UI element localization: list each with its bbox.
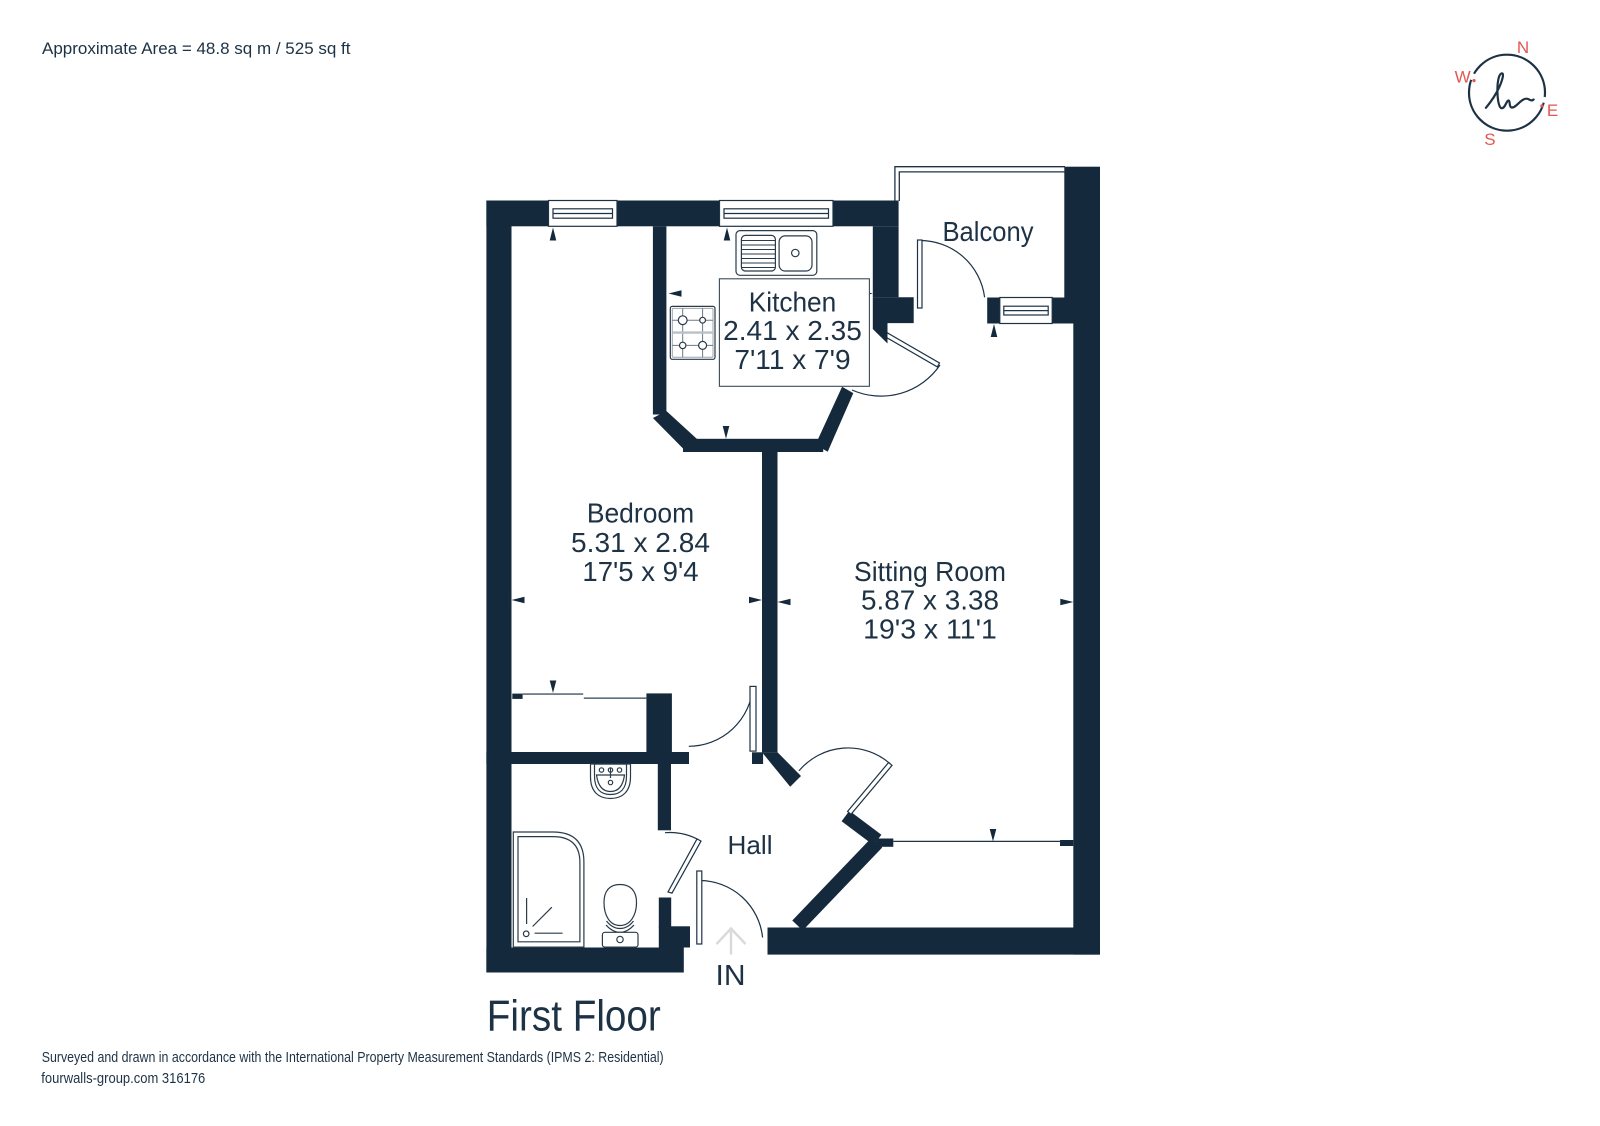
svg-text:Balcony: Balcony (943, 216, 1034, 247)
svg-text:17'5 x 9'4: 17'5 x 9'4 (582, 556, 698, 587)
svg-text:2.41 x 2.35: 2.41 x 2.35 (723, 315, 862, 346)
svg-text:Sitting Room: Sitting Room (854, 556, 1006, 587)
svg-text:Kitchen: Kitchen (749, 286, 837, 317)
svg-text:7'11 x 7'9: 7'11 x 7'9 (734, 344, 850, 375)
svg-text:S: S (1484, 130, 1495, 149)
svg-text:19'3 x 11'1: 19'3 x 11'1 (863, 614, 997, 645)
svg-text:5.87 x 3.38: 5.87 x 3.38 (861, 585, 999, 616)
svg-text:N: N (1517, 38, 1529, 57)
svg-text:Surveyed and drawn in accordan: Surveyed and drawn in accordance with th… (42, 1049, 664, 1066)
svg-text:IN: IN (716, 960, 746, 992)
svg-text:Bedroom: Bedroom (587, 497, 694, 528)
svg-text:E: E (1547, 101, 1558, 120)
svg-text:fourwalls-group.com 316176: fourwalls-group.com 316176 (41, 1070, 205, 1087)
svg-text:Approximate Area = 48.8 sq m /: Approximate Area = 48.8 sq m / 525 sq ft (42, 40, 351, 58)
svg-text:5.31 x 2.84: 5.31 x 2.84 (571, 527, 710, 558)
svg-text:Hall: Hall (728, 830, 773, 860)
svg-text:First Floor: First Floor (487, 992, 661, 1041)
svg-text:W: W (1455, 68, 1471, 87)
